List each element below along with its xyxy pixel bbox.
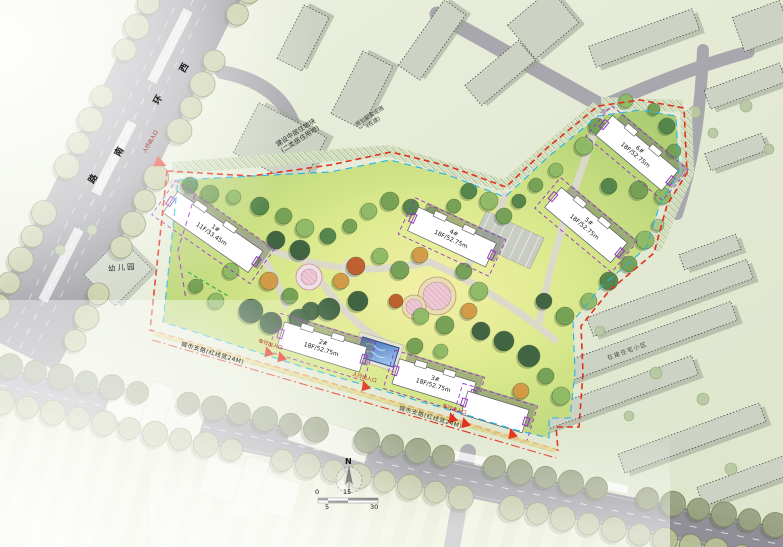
street-tree-icon [92,411,117,436]
tree-icon [413,308,429,324]
street-tree-icon [229,403,251,425]
street-tree-icon [739,509,761,531]
context-tree-icon [708,128,718,138]
context-tree-icon [650,367,662,379]
tree-icon [239,299,263,323]
street-tree-icon [629,524,651,546]
street-tree-icon [124,14,149,39]
context-tree-icon [55,245,65,255]
tree-icon [600,272,618,290]
street-tree-icon [100,375,125,400]
street-tree-icon [190,72,215,97]
tree-icon [251,197,269,215]
tree-icon [636,231,654,249]
street-tree-icon [433,445,455,467]
tree-icon [518,345,540,367]
tree-icon [556,307,574,325]
street-tree-icon [763,513,783,538]
tree-icon [282,288,298,304]
context-tree-icon [725,463,737,475]
tree-icon [372,248,388,264]
tree-icon [227,190,241,204]
tree-icon [389,294,403,308]
street-tree-icon [602,517,627,542]
street-tree-icon [144,165,169,190]
street-tree-icon [8,247,33,272]
site-plan-canvas: 西 环 南 路 人行出入口 车行出入口 人行出入口 车行出入口 城市支路(红线宽… [0,0,783,547]
street-tree-icon [578,513,600,535]
tree-icon [538,368,554,384]
street-tree-icon [226,3,248,25]
street-tree-icon [0,272,20,294]
street-tree-icon [406,438,431,463]
tree-icon [447,199,461,213]
street-tree-icon [484,456,506,478]
tree-icon [494,331,514,351]
street-tree-icon [76,371,98,393]
street-tree-icon [559,470,584,495]
street-tree-icon [500,496,525,521]
tree-icon [381,192,399,210]
street-tree-icon [55,154,80,179]
tree-icon [470,282,488,300]
tree-icon [276,208,292,224]
street-tree-icon [280,413,302,435]
street-tree-icon [25,360,47,382]
context-tree-icon [624,411,634,421]
site-plan-drawing [0,0,783,547]
street-tree-icon [527,502,549,524]
street-tree-icon [425,481,447,503]
tree-icon [434,344,448,358]
street-tree-icon [114,39,136,61]
street-tree-icon [535,466,557,488]
tree-icon [361,203,377,219]
street-tree-icon [91,86,113,108]
street-tree-icon [167,118,192,143]
tree-icon [223,263,239,279]
street-tree-icon [661,491,686,516]
street-tree-icon [382,435,404,457]
street-tree-icon [449,485,474,510]
street-tree-icon [74,305,99,330]
street-tree-icon [17,396,39,418]
context-tree-icon [697,393,709,405]
tree-icon [659,118,675,134]
context-tree-icon [595,326,605,336]
street-tree-icon [170,428,192,450]
context-tree-icon [764,144,774,154]
tree-icon [601,178,617,194]
tree-icon [513,383,529,399]
tree-icon [496,208,512,224]
street-tree-icon [203,50,225,72]
street-tree-icon [32,201,57,226]
tree-icon [407,338,423,354]
tree-icon [343,219,357,233]
street-tree-icon [127,382,149,404]
street-tree-icon [551,506,576,531]
tree-icon [480,192,498,210]
street-tree-icon [87,283,109,305]
tree-icon [456,263,472,279]
street-tree-icon [712,502,737,527]
tree-icon [552,387,570,405]
street-tree-icon [41,400,66,425]
street-tree-icon [508,460,533,485]
tree-icon [549,163,563,177]
tree-icon [472,322,490,340]
tree-icon [529,178,543,192]
street-tree-icon [119,418,141,440]
tree-icon [436,316,454,334]
tree-icon [260,272,278,290]
street-tree-icon [253,407,278,432]
tree-icon [536,293,552,309]
street-tree-icon [64,330,86,352]
street-tree-icon [78,107,103,132]
tree-icon [296,219,314,237]
street-tree-icon [49,364,74,389]
tree-icon [412,247,428,263]
playground-west [296,264,322,290]
context-tree-icon [740,100,752,112]
tree-icon [348,291,368,311]
street-tree-icon [143,421,168,446]
street-tree-icon [194,432,219,457]
scale-bar [318,498,378,503]
tree-icon [630,181,648,199]
street-tree-icon [110,236,132,258]
tree-icon [208,293,224,309]
street-tree-icon [272,449,294,471]
tree-icon [333,273,349,289]
street-tree-icon [68,132,90,154]
tree-icon [189,279,203,293]
street-tree-icon [121,212,146,237]
street-tree-icon [374,471,396,493]
tree-icon [318,298,340,320]
street-tree-icon [296,453,321,478]
street-tree-icon [586,477,608,499]
tree-icon [461,303,477,319]
street-tree-icon [304,417,329,442]
street-tree-icon [68,407,90,429]
street-tree-icon [178,392,200,414]
street-tree-icon [134,190,156,212]
tree-icon [347,257,365,275]
street-tree-icon [637,488,659,510]
context-tree-icon [87,225,97,235]
street-tree-icon [398,474,423,499]
tree-icon [391,261,409,279]
tree-icon [320,228,336,244]
tree-icon [512,194,526,208]
street-tree-icon [221,439,243,461]
street-tree-icon [0,354,23,379]
street-tree-icon [180,97,202,119]
street-tree-icon [202,396,227,421]
street-tree-icon [21,225,43,247]
street-tree-icon [688,498,710,520]
street-tree-icon [355,428,380,453]
tree-icon [290,240,310,260]
